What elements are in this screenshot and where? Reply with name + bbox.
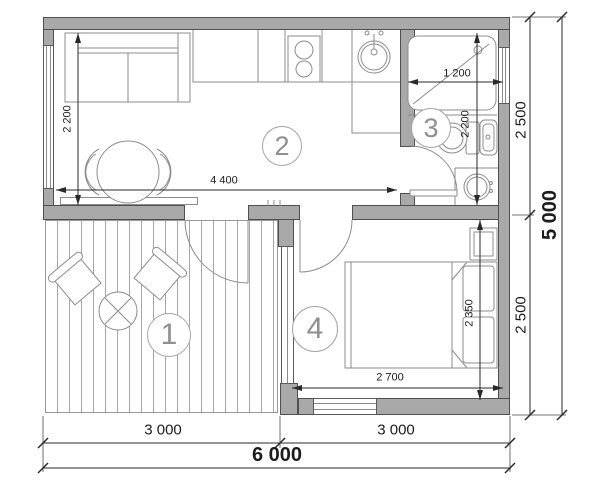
terrace-door bbox=[185, 220, 248, 283]
dining-table bbox=[85, 141, 171, 203]
dim-overall-depth: 5 000 bbox=[540, 190, 560, 240]
nightstand bbox=[470, 228, 497, 260]
stove bbox=[288, 36, 320, 82]
room-label-bedroom: 4 bbox=[292, 306, 338, 352]
dim-overall-width: 6 000 bbox=[252, 445, 302, 465]
plan-linework bbox=[0, 0, 603, 502]
dim-bottom-left: 3 000 bbox=[144, 423, 182, 438]
sofa bbox=[65, 33, 190, 102]
dim-right-bottom: 2 500 bbox=[514, 296, 529, 334]
wall-hatch-ticks bbox=[268, 200, 280, 206]
room-label-bathroom: 3 bbox=[411, 108, 451, 148]
terrace-chair-2 bbox=[131, 246, 188, 303]
dim-living-width: 4 400 bbox=[210, 176, 238, 187]
dim-bedroom-depth: 2 350 bbox=[465, 299, 476, 327]
dim-living-depth: 2 200 bbox=[63, 105, 74, 133]
dim-bottom-right: 3 000 bbox=[377, 423, 415, 438]
room-number-bedroom: 4 bbox=[307, 312, 324, 346]
dim-bedroom-width: 2 700 bbox=[376, 373, 404, 384]
bathroom-door bbox=[410, 146, 457, 196]
room-number-living: 2 bbox=[274, 131, 289, 162]
dim-bath-width: 1 200 bbox=[443, 69, 471, 80]
room-label-terrace: 1 bbox=[147, 313, 191, 357]
room-number-terrace: 1 bbox=[161, 318, 178, 352]
dim-bath-depth: 2 200 bbox=[461, 110, 472, 138]
terrace-chair-1 bbox=[47, 251, 104, 308]
room-number-bathroom: 3 bbox=[423, 113, 438, 144]
floor-plan: 1 2 3 4 2 200 4 400 1 200 2 200 2 350 2 … bbox=[0, 0, 603, 502]
kitchen-sink bbox=[358, 31, 390, 73]
coffee-table bbox=[99, 292, 137, 330]
room-label-living: 2 bbox=[262, 126, 302, 166]
washbasin bbox=[480, 120, 497, 155]
dim-right-top: 2 500 bbox=[514, 101, 529, 139]
bedroom-door bbox=[300, 220, 352, 272]
